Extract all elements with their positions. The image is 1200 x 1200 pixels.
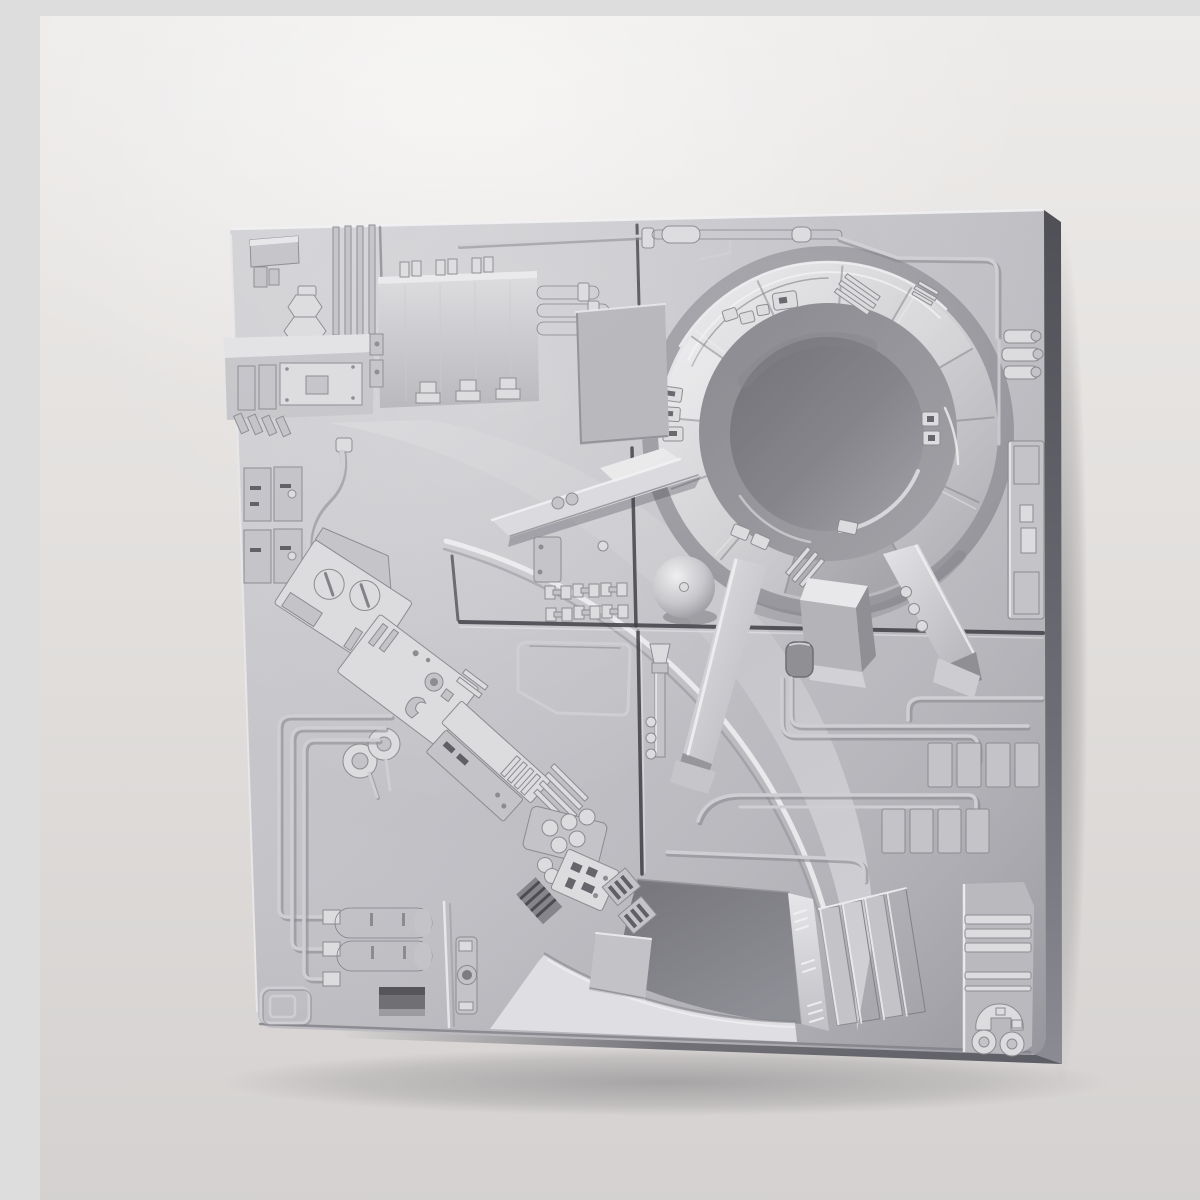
product-photo [40,16,1200,1200]
photo-sheen [40,16,1200,1200]
scene-canvas [40,16,1200,1200]
